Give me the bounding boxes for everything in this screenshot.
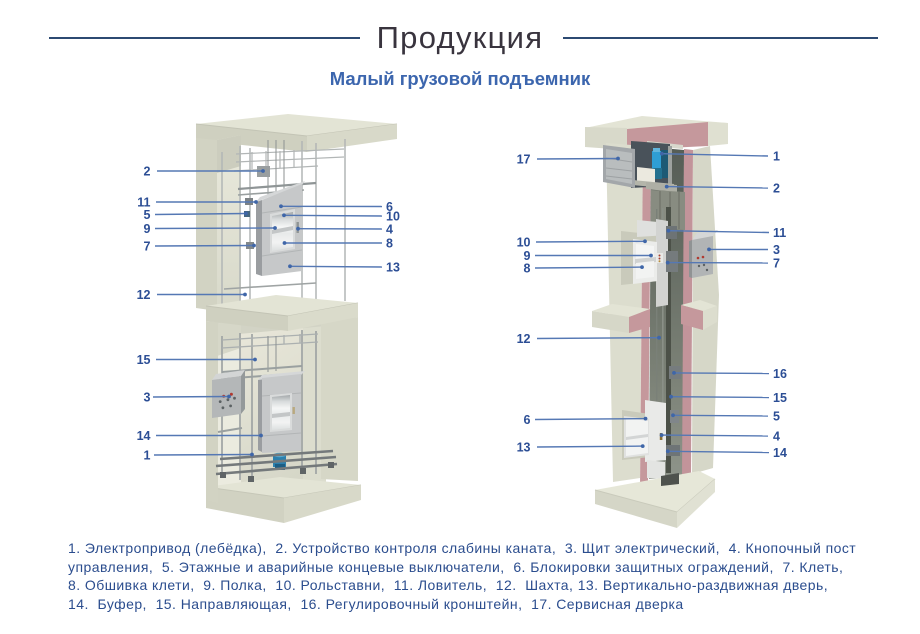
svg-text:8: 8: [386, 237, 393, 251]
svg-text:2: 2: [773, 182, 780, 196]
svg-text:7: 7: [773, 257, 780, 271]
svg-text:8: 8: [524, 262, 531, 276]
svg-text:12: 12: [137, 288, 151, 302]
svg-text:6: 6: [524, 413, 531, 427]
svg-text:10: 10: [386, 210, 400, 224]
svg-text:7: 7: [144, 240, 151, 254]
svg-text:14: 14: [137, 429, 151, 443]
svg-text:5: 5: [144, 208, 151, 222]
svg-text:4: 4: [386, 223, 393, 237]
svg-text:16: 16: [773, 367, 787, 381]
svg-text:17: 17: [517, 153, 531, 167]
svg-text:13: 13: [386, 261, 400, 275]
svg-text:4: 4: [773, 430, 780, 444]
svg-text:5: 5: [773, 410, 780, 424]
svg-text:10: 10: [517, 236, 531, 250]
svg-text:15: 15: [137, 353, 151, 367]
svg-text:3: 3: [773, 243, 780, 257]
svg-text:1: 1: [144, 449, 151, 463]
svg-text:11: 11: [773, 226, 786, 240]
svg-text:12: 12: [517, 332, 531, 346]
svg-text:13: 13: [517, 441, 531, 455]
svg-text:9: 9: [144, 222, 151, 236]
svg-text:15: 15: [773, 391, 787, 405]
svg-text:3: 3: [144, 391, 151, 405]
svg-text:1: 1: [773, 150, 780, 164]
svg-text:2: 2: [144, 165, 151, 179]
svg-text:14: 14: [773, 446, 787, 460]
